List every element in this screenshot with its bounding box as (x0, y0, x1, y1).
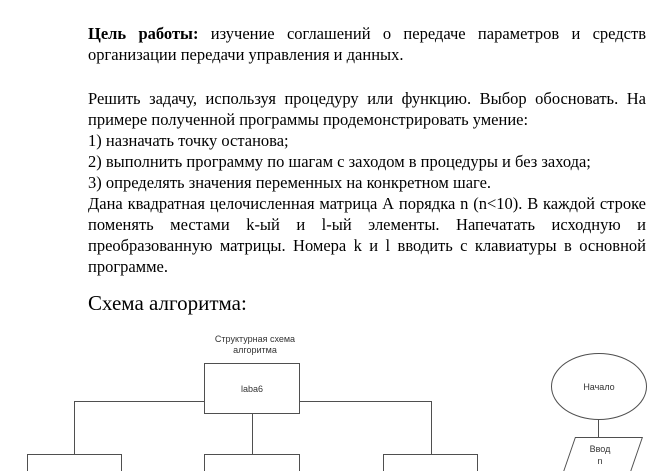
start-terminator-oval: Начало (551, 353, 647, 420)
body-text: Цель работы: изучение соглашений о перед… (88, 23, 646, 277)
flowchart-root-box: laba6 (204, 363, 300, 414)
task-step-2: 2) выполнить программу по шагам с заходо… (88, 151, 646, 172)
root-box-label: laba6 (241, 384, 263, 394)
paragraph-task: Решить задачу, используя процедуру или ф… (88, 88, 646, 130)
start-oval-label: Начало (583, 382, 614, 392)
section-heading: Схема алгоритма: (88, 291, 247, 315)
goal-label: Цель работы: (88, 24, 198, 43)
flowchart-child-box-1 (27, 454, 122, 471)
connector-horizontal-right (299, 401, 431, 402)
connector-vertical-left (74, 401, 75, 454)
flowchart-child-box-2 (204, 454, 300, 471)
start-to-input-connector (598, 420, 599, 437)
paragraph-goal: Цель работы: изучение соглашений о перед… (88, 23, 646, 65)
connector-horizontal-left (74, 401, 204, 402)
connector-vertical-right (431, 401, 432, 454)
task-step-3: 3) определять значения переменных на кон… (88, 172, 646, 193)
task-step-1: 1) назначать точку останова; (88, 130, 646, 151)
connector-vertical-center (252, 414, 253, 454)
flowchart-child-box-3 (383, 454, 478, 471)
input-block-label: Ввод n (570, 443, 630, 467)
paragraph-matrix-task: Дана квадратная целочисленная матрица А … (88, 193, 646, 277)
structure-chart-caption: Структурная схема алгоритма (180, 334, 330, 356)
document-page: Цель работы: изучение соглашений о перед… (0, 0, 666, 471)
